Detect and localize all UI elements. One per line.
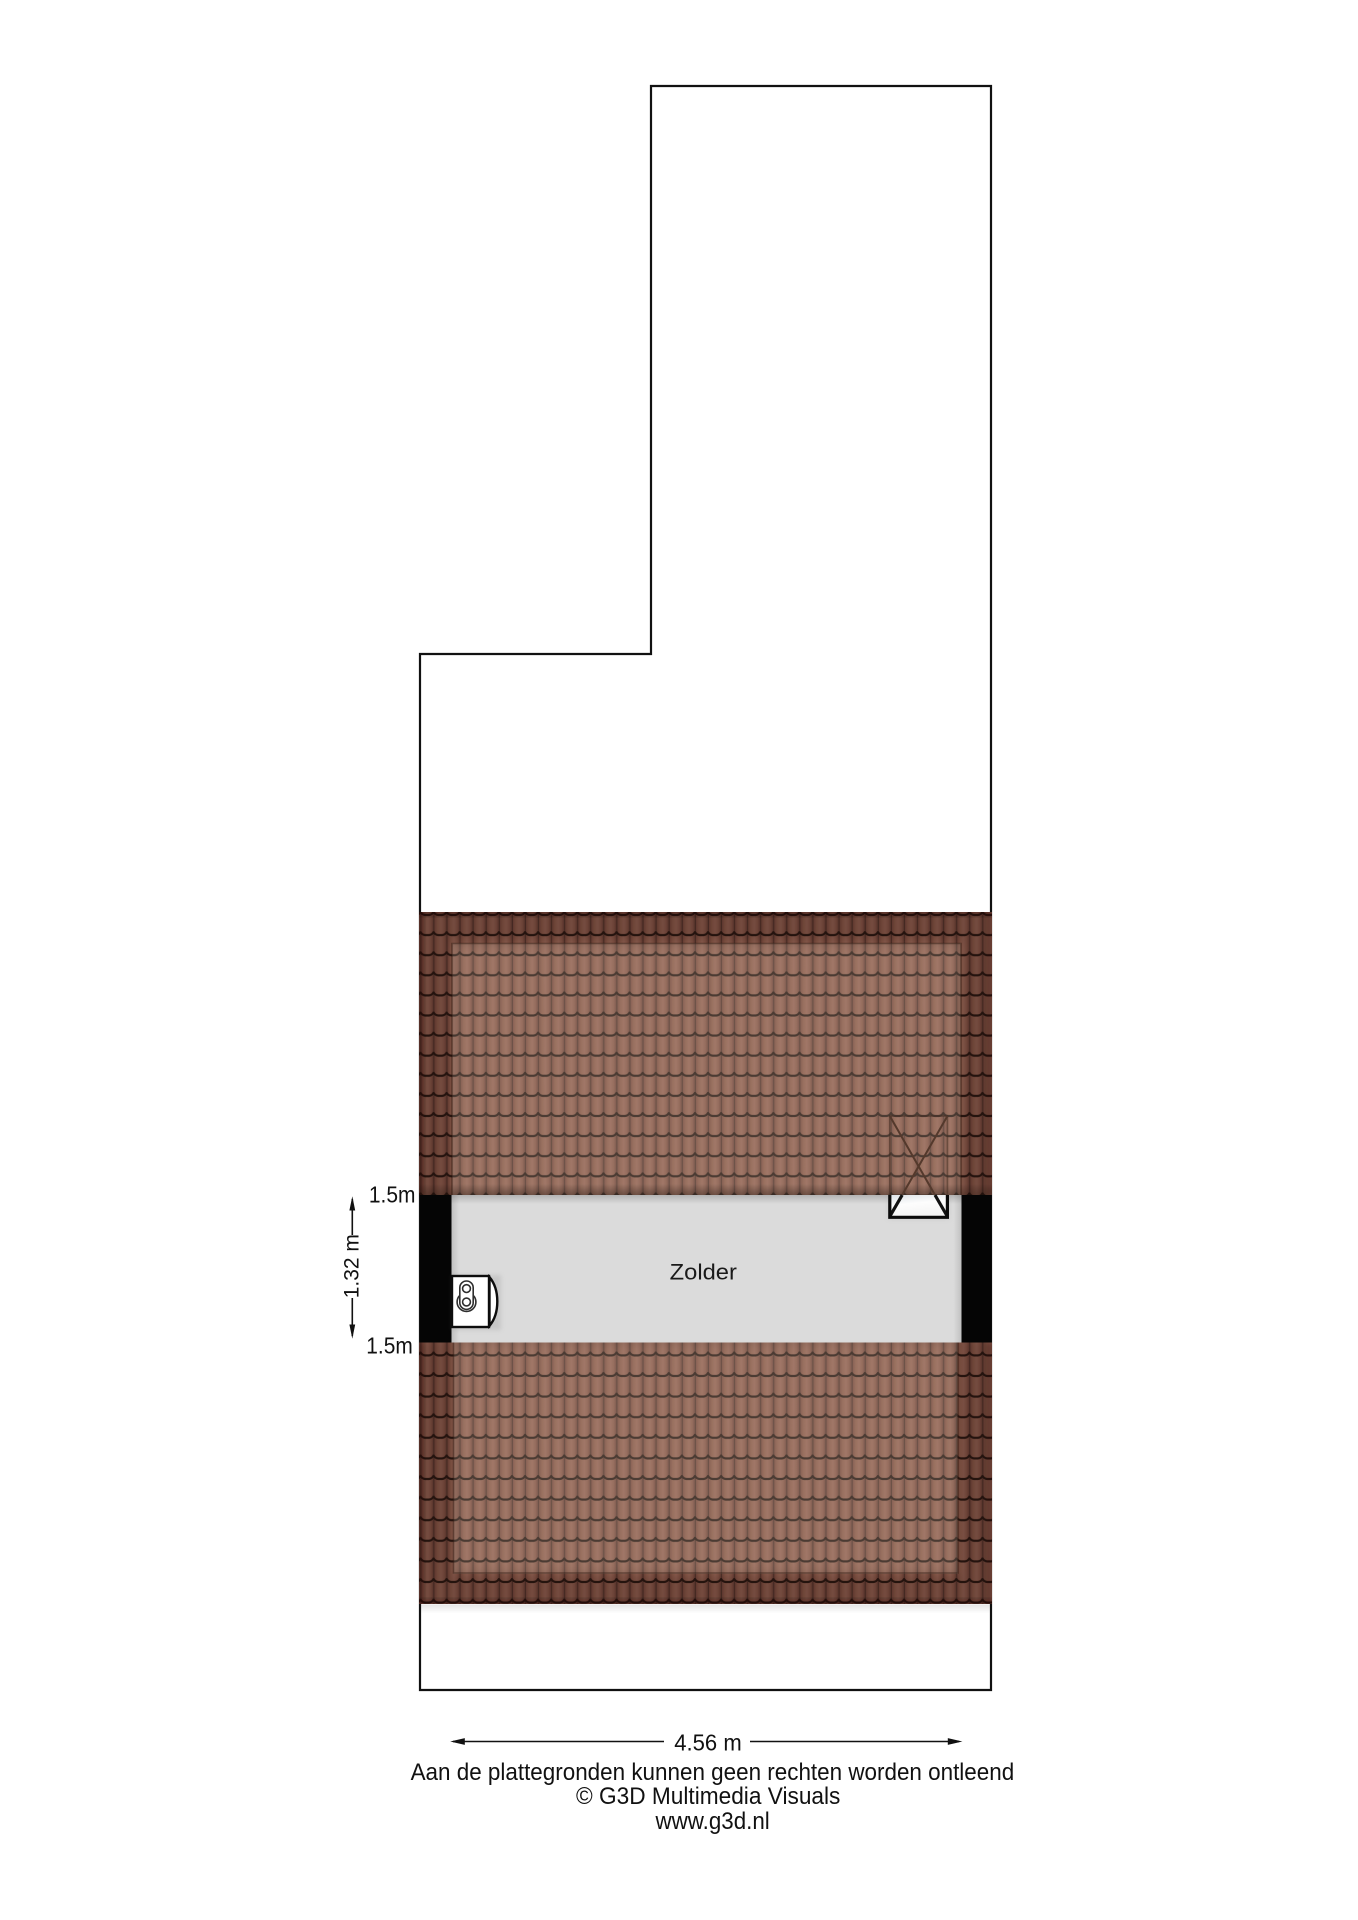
svg-text:1.5m: 1.5m xyxy=(366,1333,413,1359)
svg-text:4.56 m: 4.56 m xyxy=(674,1729,742,1755)
svg-text:© G3D Multimedia Visuals: © G3D Multimedia Visuals xyxy=(576,1783,840,1810)
svg-text:www.g3d.nl: www.g3d.nl xyxy=(655,1808,770,1835)
svg-text:1.32 m: 1.32 m xyxy=(341,1234,364,1298)
svg-text:Zolder: Zolder xyxy=(670,1260,737,1285)
svg-text:1.5m: 1.5m xyxy=(369,1181,416,1207)
